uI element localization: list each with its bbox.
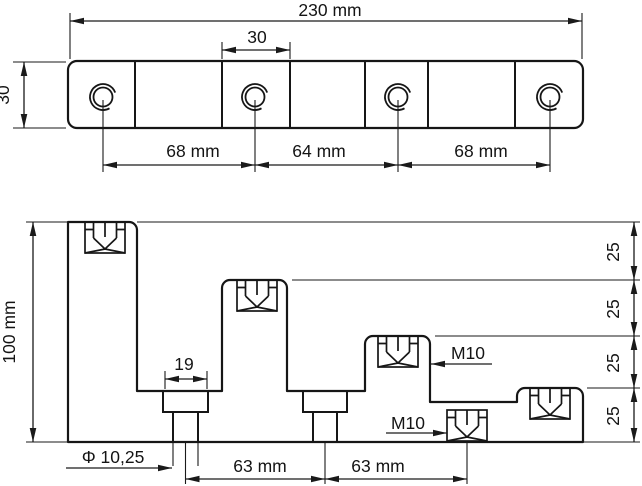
dim-cell-width: 30 (222, 27, 290, 59)
dim-label-hole-diameter: Φ 10,25 (82, 447, 145, 467)
thread-callout-lower-label: M10 (391, 413, 425, 433)
thread-callout-upper-label: M10 (451, 343, 485, 363)
drawing-canvas: 230 mm 30 30 68 mm 64 mm 68 mm (0, 0, 642, 486)
dim-label-pitch-2: 64 mm (292, 141, 345, 161)
dim-hole-diameter: Φ 10,25 (66, 447, 172, 468)
thread-callout-lower: M10 (386, 413, 447, 433)
thread-callout-upper: M10 (431, 343, 492, 364)
dim-hole-pitch-row: 68 mm 64 mm 68 mm (103, 141, 550, 165)
stepped-part-outline (68, 222, 583, 442)
dim-label-step-3: 25 (603, 353, 623, 372)
dim-overall-height: 100 mm (0, 222, 33, 442)
front-view: 100 mm 19 Φ 10,25 63 mm 63 mm M10 M10 (0, 222, 640, 484)
tapped-hole-symbol-1 (85, 222, 125, 253)
dim-label-step-4: 25 (603, 406, 623, 425)
dim-label-counterbore-width: 19 (174, 354, 193, 374)
dim-label-pitch-1: 68 mm (166, 141, 219, 161)
dim-label-overall-height: 100 mm (0, 300, 19, 363)
counterbore-hole-1 (163, 391, 208, 484)
dim-step-heights: 25 25 25 25 (603, 222, 634, 442)
tapped-hole-symbol-5 (447, 410, 487, 441)
tapped-hole-symbol-4 (530, 388, 570, 419)
bar-division-lines (135, 61, 515, 128)
hole-axis-extension-lines (103, 100, 550, 172)
dim-label-cell-width: 30 (247, 27, 267, 47)
step-extension-lines (26, 222, 640, 442)
top-view: 230 mm 30 30 68 mm 64 mm 68 mm (0, 0, 583, 172)
tapped-hole-symbol-3 (378, 336, 418, 367)
dim-bar-height: 30 (0, 62, 66, 128)
dim-label-bar-height: 30 (0, 85, 13, 105)
dim-label-step-1: 25 (603, 242, 623, 261)
dim-hole-pitch-row-bottom: 63 mm 63 mm (186, 456, 468, 479)
dim-label-pitch-63-2: 63 mm (351, 456, 404, 476)
tapped-hole-symbol-2 (237, 280, 277, 311)
bar-outline (68, 61, 583, 128)
dim-label-step-2: 25 (603, 299, 623, 318)
dim-label-overall-width: 230 mm (298, 0, 361, 20)
dim-counterbore-width: 19 (165, 354, 207, 389)
dim-overall-width: 230 mm (70, 0, 582, 59)
counterbore-hole-2 (303, 391, 347, 484)
technical-drawing: 230 mm 30 30 68 mm 64 mm 68 mm (0, 0, 642, 486)
dim-label-pitch-3: 68 mm (454, 141, 507, 161)
dim-label-pitch-63-1: 63 mm (233, 456, 286, 476)
